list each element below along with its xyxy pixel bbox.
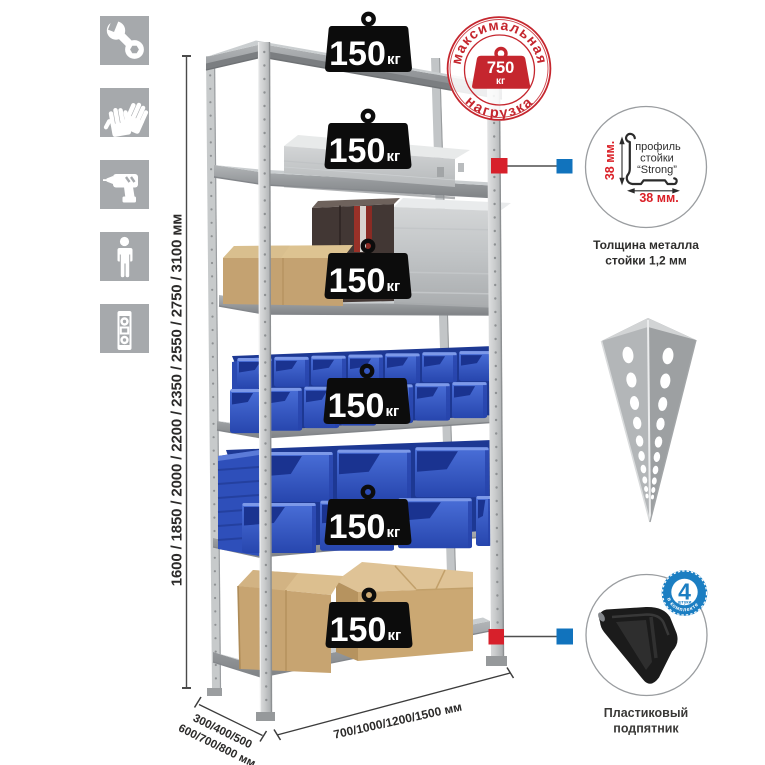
svg-text:1600 / 1850 / 2000 / 2200 / 23: 1600 / 1850 / 2000 / 2200 / 2350 / 2550 … — [169, 214, 186, 586]
svg-text:кг: кг — [496, 76, 505, 87]
svg-text:38 мм.: 38 мм. — [603, 141, 617, 180]
svg-text:Пластиковый: Пластиковый — [604, 706, 688, 720]
svg-text:подпятник: подпятник — [613, 722, 679, 736]
svg-text:“Strong”: “Strong” — [637, 164, 677, 176]
svg-text:Толщина металла: Толщина металла — [593, 238, 699, 252]
svg-text:стойки: стойки — [640, 153, 674, 165]
svg-text:профиль: профиль — [635, 141, 681, 153]
svg-text:штуки: штуки — [678, 600, 692, 605]
svg-text:750: 750 — [487, 59, 515, 77]
svg-text:стойки 1,2 мм: стойки 1,2 мм — [605, 254, 687, 268]
svg-text:38 мм.: 38 мм. — [639, 191, 678, 205]
